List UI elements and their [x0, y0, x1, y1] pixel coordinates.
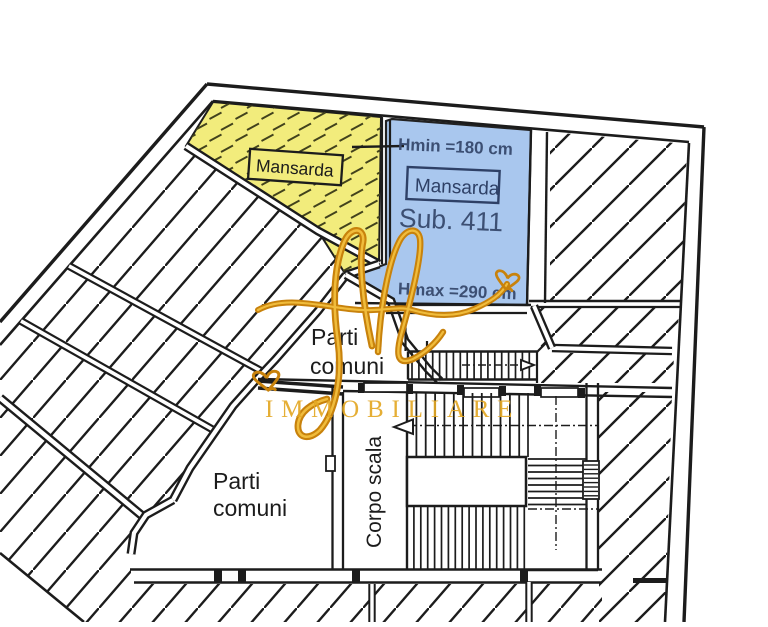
- svg-text:Parti: Parti: [213, 468, 260, 494]
- svg-text:comuni: comuni: [213, 495, 287, 521]
- svg-text:comuni: comuni: [310, 353, 384, 379]
- svg-text:Corpo scala: Corpo scala: [363, 436, 386, 548]
- svg-text:Mansarda: Mansarda: [414, 175, 500, 200]
- svg-text:IMMOBILIARE: IMMOBILIARE: [265, 396, 520, 423]
